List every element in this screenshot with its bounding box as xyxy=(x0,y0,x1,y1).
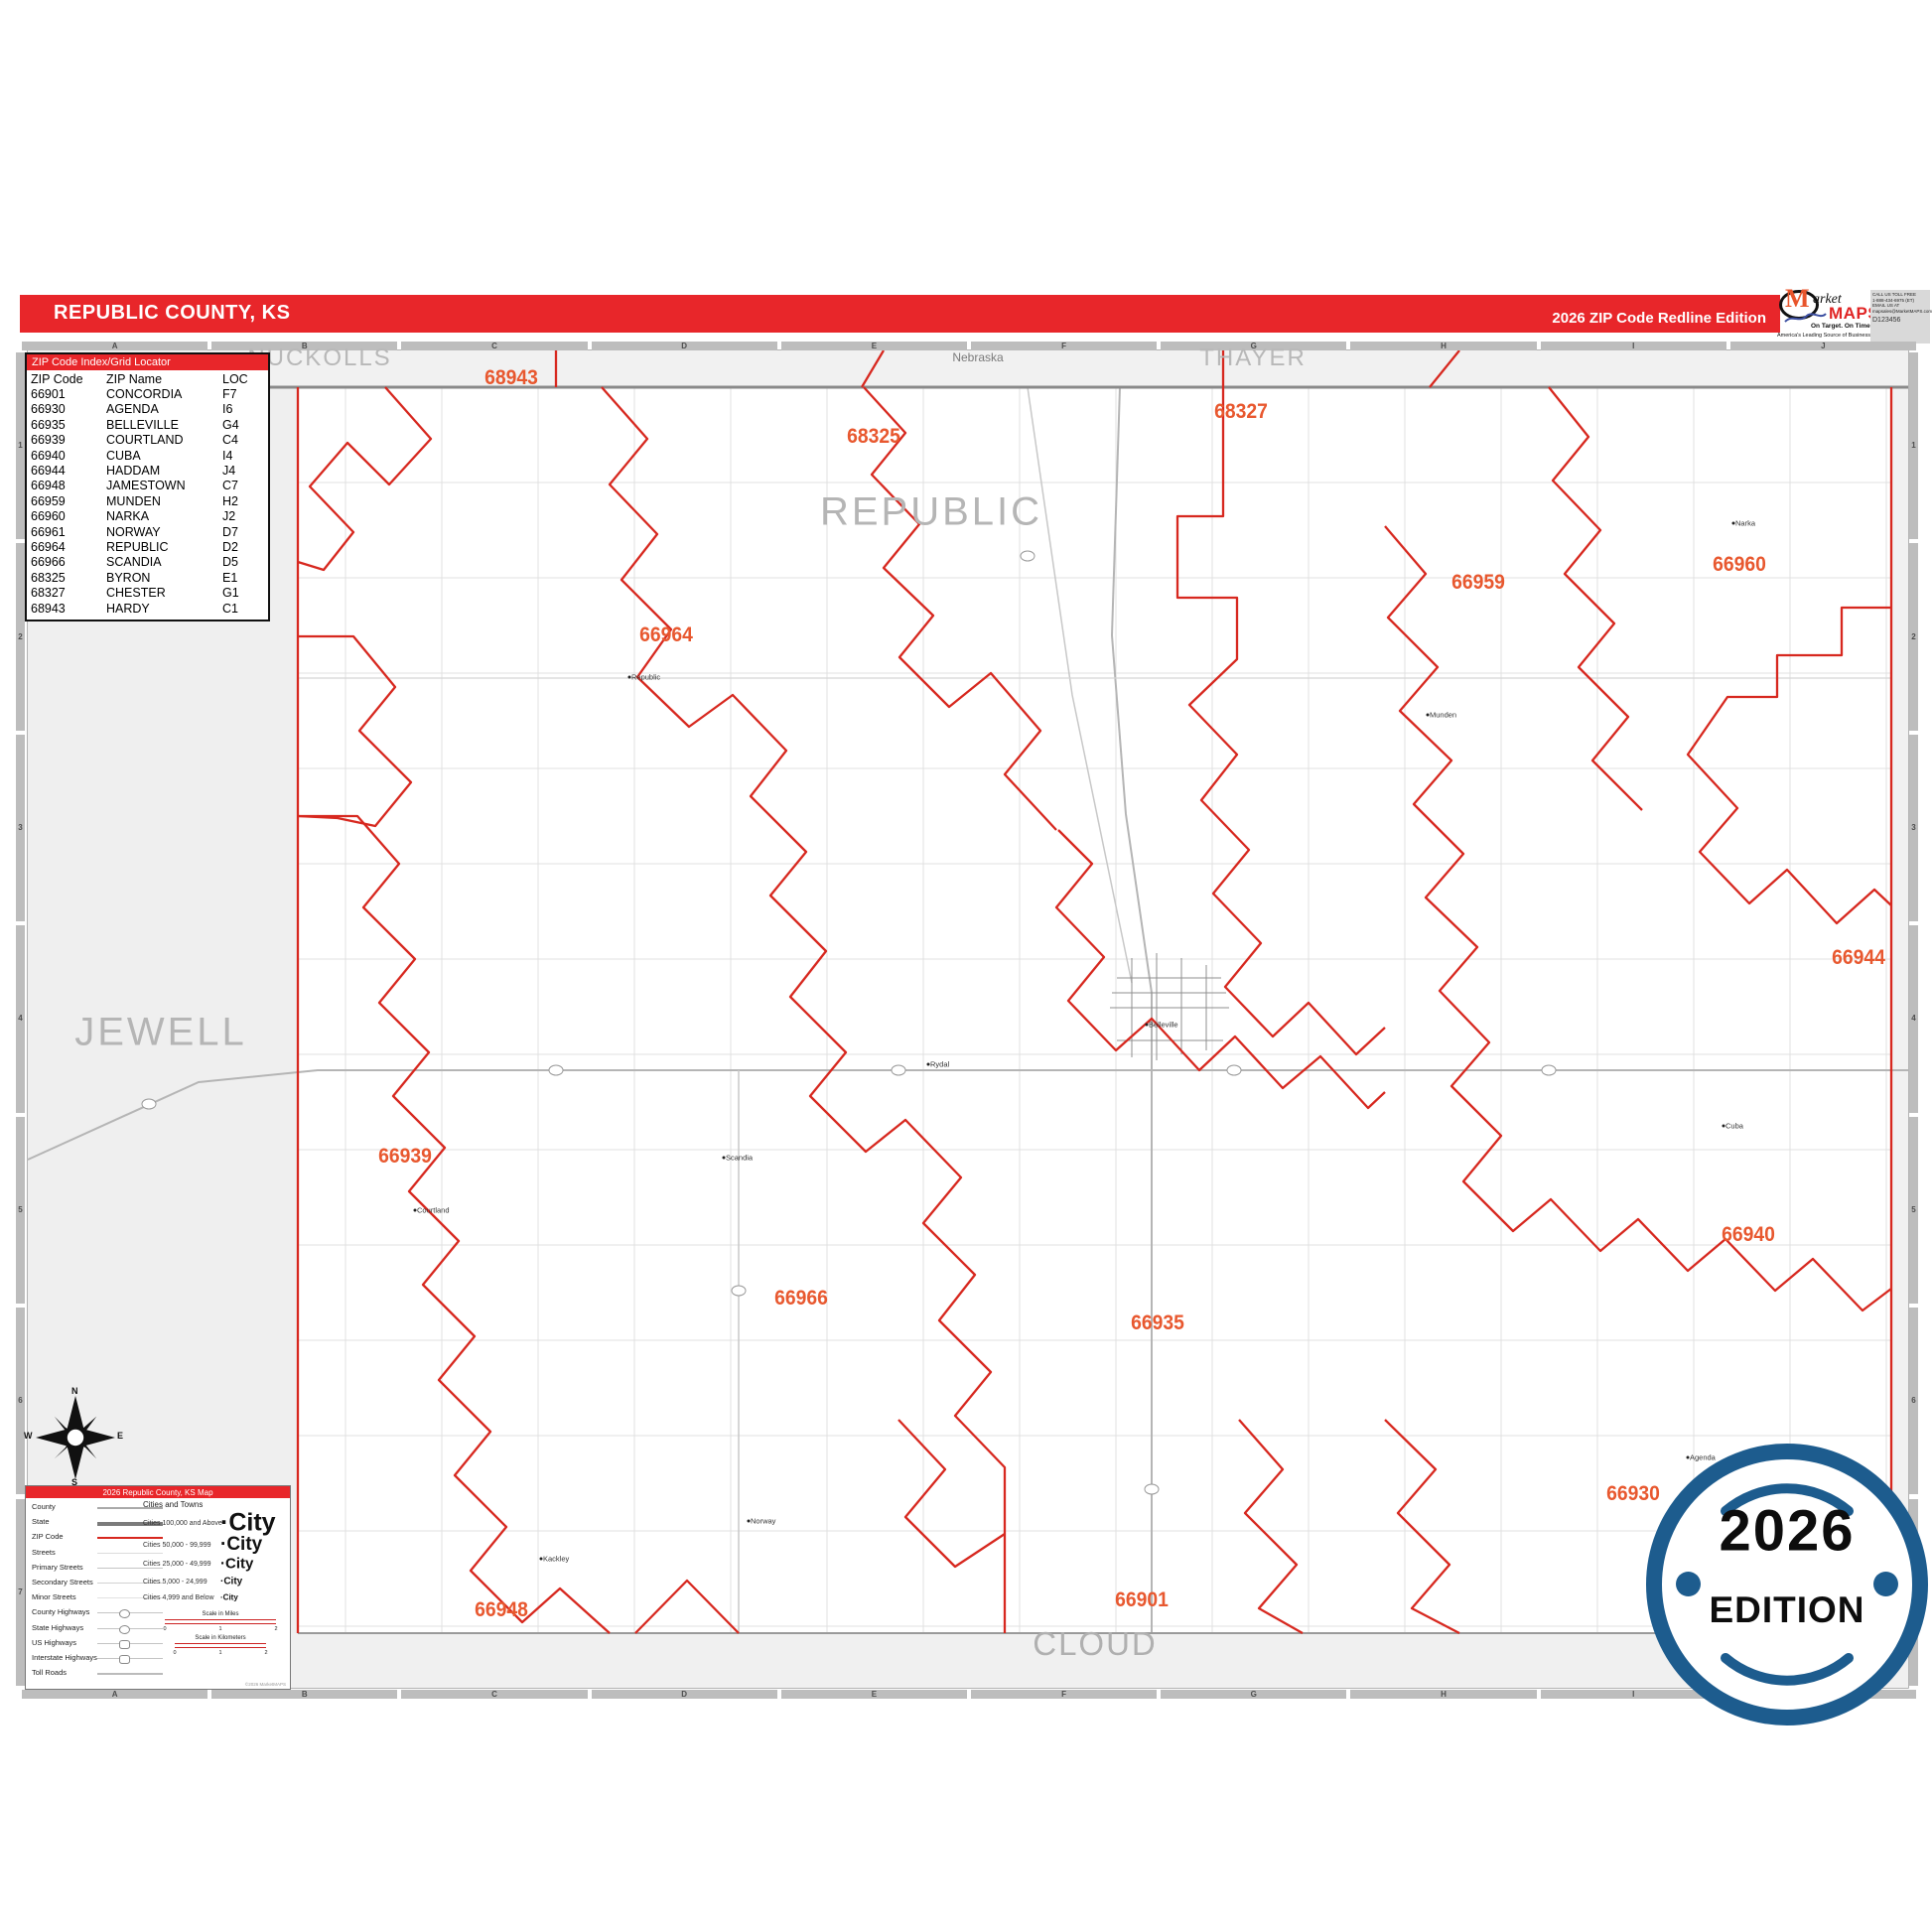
zip-index-row: 68943HARDYC1 xyxy=(27,602,268,617)
grid-row-3: 3 xyxy=(1909,735,1918,921)
zip-index-cell: JAMESTOWN xyxy=(106,479,222,493)
zip-index-row: 66966SCANDIAD5 xyxy=(27,555,268,570)
zip-label-68327: 68327 xyxy=(1214,400,1268,424)
zip-index-cell: 66966 xyxy=(31,555,106,570)
legend-city-sample: ·City xyxy=(220,1593,238,1602)
scale-miles-caption: Scale in Miles xyxy=(202,1611,238,1617)
zip-index-cell: C4 xyxy=(222,433,262,448)
zip-index-cell: 68943 xyxy=(31,602,106,617)
legend-item-state-highways: State Highways xyxy=(32,1623,161,1633)
legend-item-label: State xyxy=(32,1517,50,1526)
grid-row-6: 6 xyxy=(16,1308,25,1494)
zip-label-66935: 66935 xyxy=(1131,1311,1184,1335)
legend-line-sample xyxy=(97,1658,163,1659)
grid-row-number: 2 xyxy=(18,632,22,641)
grid-row-5: 5 xyxy=(1909,1117,1918,1304)
zip-index-cell: 66960 xyxy=(31,509,106,524)
grid-row-number: 4 xyxy=(1911,1015,1915,1024)
zip-index-header-row: ZIP Code ZIP Name LOC xyxy=(27,370,268,387)
grid-row-number: 3 xyxy=(1911,823,1915,832)
legend-city-label: Cities 25,000 - 49,999 xyxy=(143,1561,211,1568)
zip-index-title: ZIP Code Index/Grid Locator xyxy=(27,354,268,370)
legend-item-label: Secondary Streets xyxy=(32,1578,93,1587)
grid-col-letter: C xyxy=(491,1690,497,1699)
logo-tagline: On Target. On Time. xyxy=(1811,323,1872,330)
zip-index-row: 68327CHESTERG1 xyxy=(27,586,268,601)
region-label-republic: REPUBLIC xyxy=(820,490,1042,535)
zip-index-row: 66930AGENDAI6 xyxy=(27,402,268,417)
town-label-cuba: Cuba xyxy=(1725,1122,1743,1131)
grid-col-C: C xyxy=(401,1690,587,1699)
grid-col-letter: J xyxy=(1821,342,1825,350)
zip-index-cell: 66935 xyxy=(31,418,106,433)
zip-label-66960: 66960 xyxy=(1713,553,1766,577)
grid-row-number: 4 xyxy=(18,1015,22,1024)
zip-index-cell: CUBA xyxy=(106,449,222,464)
grid-col-letter: A xyxy=(112,1690,118,1699)
grid-col-D: D xyxy=(592,342,777,350)
grid-col-H: H xyxy=(1350,1690,1536,1699)
zip-label-66948: 66948 xyxy=(475,1598,528,1622)
zip-index-cell: D5 xyxy=(222,555,262,570)
grid-col-letter: F xyxy=(1061,1690,1066,1699)
zip-index-row: 66935BELLEVILLEG4 xyxy=(27,418,268,433)
zip-index-cell: I4 xyxy=(222,449,262,464)
zip-index-cell: 66961 xyxy=(31,525,106,540)
map-poster: ABCDEFGHIJ ABCDEFGHIJ 1234567 1234567 RE… xyxy=(0,0,1932,1932)
legend-item-label: Primary Streets xyxy=(32,1563,83,1572)
zip-index-cell: H2 xyxy=(222,494,262,509)
grid-col-letter: I xyxy=(1632,342,1634,350)
scale-km-bar xyxy=(175,1643,266,1648)
zip-label-66939: 66939 xyxy=(378,1145,432,1169)
zip-index-row: 66939COURTLANDC4 xyxy=(27,433,268,448)
zip-index-table: ZIP Code Index/Grid Locator ZIP Code ZIP… xyxy=(25,352,270,621)
town-label-courtland: Courtland xyxy=(417,1206,450,1215)
compass-n-label: N xyxy=(71,1386,78,1396)
grid-col-E: E xyxy=(781,342,967,350)
legend-city-sample: ·City xyxy=(220,1556,253,1573)
legend-item-streets: Streets xyxy=(32,1548,161,1558)
zip-index-row: 66948JAMESTOWNC7 xyxy=(27,479,268,493)
zip-index-cell: E1 xyxy=(222,571,262,586)
grid-col-letter: I xyxy=(1632,1690,1634,1699)
zip-index-row: 66959MUNDENH2 xyxy=(27,494,268,509)
zip-index-cell: J2 xyxy=(222,509,262,524)
legend-item-state: State xyxy=(32,1517,161,1527)
scale-tick-2: 2 xyxy=(274,1626,277,1632)
town-label-scandia: Scandia xyxy=(726,1154,753,1163)
grid-row-4: 4 xyxy=(16,925,25,1112)
legend-item-label: State Highways xyxy=(32,1623,83,1632)
badge-left-dot xyxy=(1676,1572,1701,1596)
grid-col-letter: F xyxy=(1061,342,1066,350)
zip-index-cell: 66901 xyxy=(31,387,106,402)
zip-label-66966: 66966 xyxy=(774,1287,828,1311)
legend-city-sample: ·City xyxy=(220,1534,262,1556)
legend-cities-title: Cities and Towns xyxy=(143,1500,203,1509)
legend-item-interstate-highways: Interstate Highways xyxy=(32,1653,161,1663)
zip-label-68943: 68943 xyxy=(484,366,538,390)
grid-col-B: B xyxy=(211,1690,397,1699)
grid-row-2: 2 xyxy=(16,543,25,730)
zip-index-cell: MUNDEN xyxy=(106,494,222,509)
town-label-kackley: Kackley xyxy=(543,1555,569,1564)
zip-label-66930: 66930 xyxy=(1606,1482,1660,1506)
region-label-cloud: CLOUD xyxy=(1033,1625,1158,1663)
grid-row-number: 7 xyxy=(18,1587,22,1596)
zip-index-cell: 66959 xyxy=(31,494,106,509)
grid-row-number: 5 xyxy=(1911,1205,1915,1214)
zip-label-66901: 66901 xyxy=(1115,1588,1169,1612)
badge-year: 2026 xyxy=(1719,1498,1855,1565)
zip-index-cell: G4 xyxy=(222,418,262,433)
zip-index-cell: HARDY xyxy=(106,602,222,617)
grid-col-letter: H xyxy=(1441,342,1447,350)
zip-index-rows: 66901CONCORDIAF766930AGENDAI666935BELLEV… xyxy=(27,387,268,620)
badge-right-dot xyxy=(1873,1572,1898,1596)
grid-col-A: A xyxy=(22,1690,207,1699)
legend-item-label: Streets xyxy=(32,1548,56,1557)
scale-tick-0: 0 xyxy=(173,1650,176,1656)
grid-row-number: 5 xyxy=(18,1205,22,1214)
zip-index-row: 66964REPUBLICD2 xyxy=(27,540,268,555)
zip-index-cell: C1 xyxy=(222,602,262,617)
zip-index-cell: BELLEVILLE xyxy=(106,418,222,433)
grid-col-letter: B xyxy=(302,1690,308,1699)
col-header-zip-name: ZIP Name xyxy=(106,372,222,386)
legend-item-label: US Highways xyxy=(32,1638,76,1647)
zip-index-cell: NORWAY xyxy=(106,525,222,540)
zip-index-cell: 66964 xyxy=(31,540,106,555)
zip-index-row: 66901CONCORDIAF7 xyxy=(27,387,268,402)
product-id: D123456 xyxy=(1872,317,1928,324)
zip-index-row: 66940CUBAI4 xyxy=(27,449,268,464)
grid-col-letter: D xyxy=(681,1690,687,1699)
legend-item-primary-streets: Primary Streets xyxy=(32,1563,161,1573)
zip-index-cell: 68325 xyxy=(31,571,106,586)
town-label-narka: Narka xyxy=(1735,519,1755,528)
marketmaps-logo: M arket MAPS On Target. On Time. America… xyxy=(1777,286,1928,347)
compass-w-label: W xyxy=(24,1431,33,1441)
grid-col-H: H xyxy=(1350,342,1536,350)
badge-word: EDITION xyxy=(1709,1589,1864,1631)
town-label-rydal: Rydal xyxy=(930,1060,949,1069)
zip-index-cell: 66948 xyxy=(31,479,106,493)
edition-badge: 2026 EDITION xyxy=(1646,1444,1928,1725)
zip-index-cell: G1 xyxy=(222,586,262,601)
region-label-nebraska: Nebraska xyxy=(952,350,1003,364)
grid-row-number: 3 xyxy=(18,823,22,832)
legend-line-sample xyxy=(97,1537,163,1539)
legend-city-label: Cities 4,999 and Below xyxy=(143,1594,214,1601)
legend-item-label: County Highways xyxy=(32,1607,89,1616)
legend-item-county: County xyxy=(32,1502,161,1512)
legend-line-sample xyxy=(97,1553,163,1554)
town-label-munden: Munden xyxy=(1430,711,1456,720)
grid-row-number: 1 xyxy=(1911,441,1915,450)
contact-line: mapsales@MarketMAPS.com xyxy=(1872,309,1928,315)
legend-item-county-highways: County Highways xyxy=(32,1607,161,1617)
zip-index-cell: 66944 xyxy=(31,464,106,479)
grid-col-D: D xyxy=(592,1690,777,1699)
grid-row-4: 4 xyxy=(1909,925,1918,1112)
zip-index-cell: NARKA xyxy=(106,509,222,524)
grid-col-letter: H xyxy=(1441,1690,1447,1699)
title-bar: REPUBLIC COUNTY, KS 2026 ZIP Code Redlin… xyxy=(20,295,1780,333)
zip-index-cell: COURTLAND xyxy=(106,433,222,448)
grid-col-J: J xyxy=(1730,342,1916,350)
legend-item-label: County xyxy=(32,1502,56,1511)
region-label-thayer: THAYER xyxy=(1199,345,1307,372)
grid-col-letter: A xyxy=(112,342,118,350)
zip-index-cell: F7 xyxy=(222,387,262,402)
zip-index-cell: REPUBLIC xyxy=(106,540,222,555)
grid-col-F: F xyxy=(971,1690,1157,1699)
zip-label-66964: 66964 xyxy=(639,623,693,647)
compass-rose: N E S W xyxy=(28,1390,123,1485)
legend-city-label: Cities 5,000 - 24,999 xyxy=(143,1579,207,1586)
zip-index-cell: 66930 xyxy=(31,402,106,417)
legend-line-sample xyxy=(97,1628,163,1629)
zip-index-row: 66961NORWAYD7 xyxy=(27,525,268,540)
grid-row-number: 1 xyxy=(18,441,22,450)
legend-city-label: Cities 100,000 and Above xyxy=(143,1520,222,1527)
zip-label-66959: 66959 xyxy=(1451,571,1505,595)
grid-col-F: F xyxy=(971,342,1157,350)
zip-index-cell: BYRON xyxy=(106,571,222,586)
circle-shield-icon xyxy=(119,1625,130,1634)
grid-row-5: 5 xyxy=(16,1117,25,1304)
compass-star-icon xyxy=(28,1390,123,1485)
logo-subline: America's Leading Source of Business Map… xyxy=(1777,333,1885,339)
zip-index-cell: AGENDA xyxy=(106,402,222,417)
contact-info-box: CALL US TOLL FREE1-888-434-6975 (ET)EMAI… xyxy=(1870,290,1930,344)
zip-index-row: 68325BYRONE1 xyxy=(27,571,268,586)
grid-col-letter: E xyxy=(872,342,877,350)
zip-label-68325: 68325 xyxy=(847,425,900,449)
us-shield-icon xyxy=(119,1640,130,1649)
col-header-loc: LOC xyxy=(222,372,262,386)
edition-subtitle: 2026 ZIP Code Redline Edition xyxy=(1552,310,1766,327)
town-label-norway: Norway xyxy=(751,1517,775,1526)
zip-index-cell: CONCORDIA xyxy=(106,387,222,402)
scale-tick-1: 1 xyxy=(218,1626,221,1632)
grid-row-1: 1 xyxy=(16,352,25,539)
grid-col-A: A xyxy=(22,342,207,350)
legend-line-sample xyxy=(97,1673,163,1675)
grid-col-letter: G xyxy=(1251,1690,1257,1699)
zip-index-cell: CHESTER xyxy=(106,586,222,601)
legend-item-minor-streets: Minor Streets xyxy=(32,1592,161,1602)
zip-index-cell: I6 xyxy=(222,402,262,417)
zip-index-row: 66944HADDAMJ4 xyxy=(27,464,268,479)
legend-line-sample xyxy=(97,1612,163,1613)
grid-col-C: C xyxy=(401,342,587,350)
scale-km-caption: Scale in Kilometers xyxy=(195,1635,245,1641)
map-legend: 2026 Republic County, KS Map CountyState… xyxy=(25,1485,291,1690)
oval-shield-icon xyxy=(119,1609,130,1618)
grid-row-1: 1 xyxy=(1909,352,1918,539)
grid-row-number: 6 xyxy=(1911,1396,1915,1405)
legend-item-secondary-streets: Secondary Streets xyxy=(32,1578,161,1587)
region-label-jewell: JEWELL xyxy=(74,1011,247,1055)
legend-line-sample xyxy=(97,1643,163,1644)
compass-e-label: E xyxy=(117,1431,123,1441)
grid-row-3: 3 xyxy=(16,735,25,921)
zip-index-cell: 66939 xyxy=(31,433,106,448)
legend-item-zip-code: ZIP Code xyxy=(32,1532,161,1542)
grid-col-letter: D xyxy=(681,342,687,350)
zip-index-cell: SCANDIA xyxy=(106,555,222,570)
grid-row-number: 6 xyxy=(18,1396,22,1405)
legend-item-label: Toll Roads xyxy=(32,1668,67,1677)
town-label-belleville: Belleville xyxy=(1149,1021,1178,1030)
legend-item-label: Interstate Highways xyxy=(32,1653,97,1662)
zip-index-cell: C7 xyxy=(222,479,262,493)
scale-tick-2: 2 xyxy=(264,1650,267,1656)
zip-label-66944: 66944 xyxy=(1832,946,1885,970)
zip-index-cell: D2 xyxy=(222,540,262,555)
grid-row-2: 2 xyxy=(1909,543,1918,730)
col-header-zip-code: ZIP Code xyxy=(31,372,106,386)
zip-index-cell: 68327 xyxy=(31,586,106,601)
grid-row-number: 2 xyxy=(1911,632,1915,641)
page-title: REPUBLIC COUNTY, KS xyxy=(54,302,290,325)
zip-index-cell: 66940 xyxy=(31,449,106,464)
legend-item-us-highways: US Highways xyxy=(32,1638,161,1648)
scale-miles-bar xyxy=(165,1619,276,1624)
interstate-shield-icon xyxy=(119,1655,130,1664)
zip-index-cell: HADDAM xyxy=(106,464,222,479)
grid-col-G: G xyxy=(1161,1690,1346,1699)
grid-col-letter: C xyxy=(491,342,497,350)
legend-item-label: ZIP Code xyxy=(32,1532,64,1541)
legend-city-label: Cities 50,000 - 99,999 xyxy=(143,1542,211,1549)
grid-col-letter: E xyxy=(872,1690,877,1699)
zip-index-cell: J4 xyxy=(222,464,262,479)
legend-city-sample: ·City xyxy=(220,1577,242,1587)
zip-label-66940: 66940 xyxy=(1722,1223,1775,1247)
scale-tick-1: 1 xyxy=(218,1650,221,1656)
legend-item-toll-roads: Toll Roads xyxy=(32,1668,161,1678)
town-label-republic: Republic xyxy=(631,673,660,682)
scale-tick-0: 0 xyxy=(163,1626,166,1632)
zip-index-cell: D7 xyxy=(222,525,262,540)
legend-credit: ©2026 MarketMAPS xyxy=(245,1682,286,1687)
zip-index-row: 66960NARKAJ2 xyxy=(27,509,268,524)
grid-col-E: E xyxy=(781,1690,967,1699)
legend-title: 2026 Republic County, KS Map xyxy=(26,1486,290,1498)
grid-row-7: 7 xyxy=(16,1499,25,1686)
grid-col-I: I xyxy=(1541,342,1726,350)
legend-item-label: Minor Streets xyxy=(32,1592,76,1601)
